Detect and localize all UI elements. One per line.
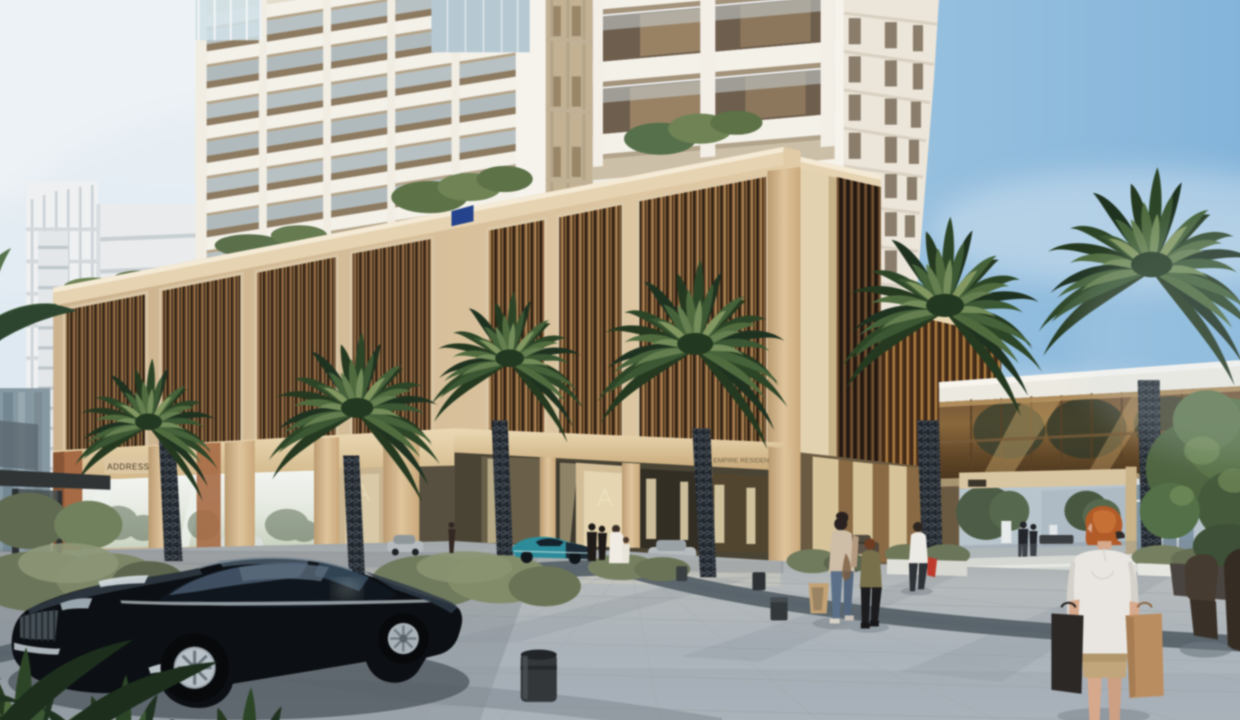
svg-text:ADDRESS: ADDRESS (107, 463, 149, 472)
